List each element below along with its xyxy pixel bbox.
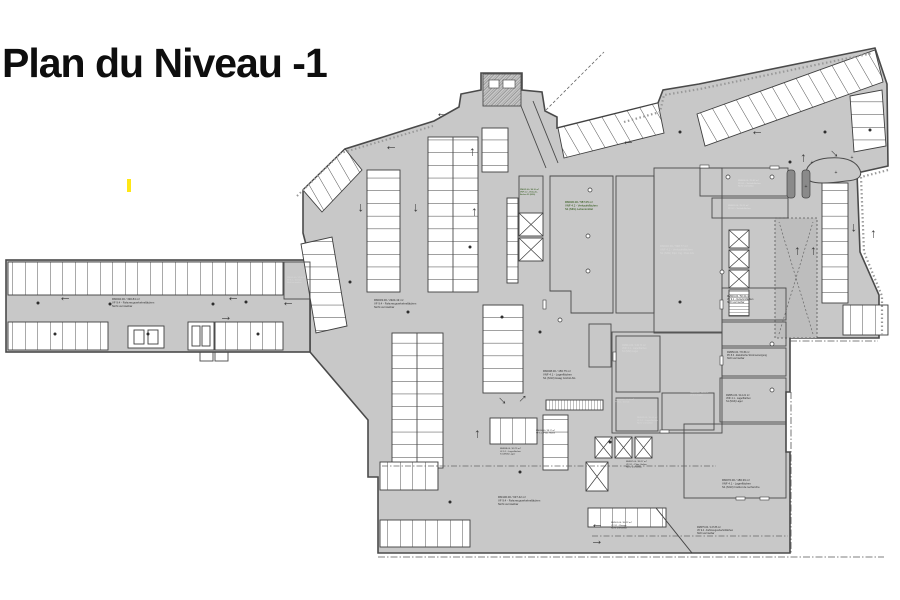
door-marks-part — [613, 352, 616, 361]
room-label: Nicht vermietbar — [727, 301, 745, 304]
column-marker — [245, 301, 248, 304]
room-label: Nicht vermietbar — [626, 466, 642, 469]
direction-arrow: → — [59, 294, 72, 309]
column-marker — [212, 303, 215, 306]
floorplan-svg: ++++ →→→→→→→→→→→→→→→→→→→→→→→ RM002.00 / … — [0, 0, 900, 600]
column-marker — [469, 246, 472, 249]
column-marker-ring — [726, 175, 730, 179]
room-label: Nicht vermietbar — [727, 357, 745, 360]
room-label: flächen S1 (MIG) — [520, 194, 535, 196]
utility-box — [200, 352, 213, 361]
column-marker — [609, 441, 612, 444]
stall-column — [482, 128, 508, 172]
room-label: PF 8.2 - Technikflächen — [728, 208, 752, 210]
room-label: Nicht vermietbar — [498, 502, 518, 506]
room-label: VF 9.1 - Platz, Halten — [626, 463, 648, 466]
stall-column — [507, 198, 518, 283]
room-label: RM101.00 / 56.22 m² — [611, 521, 632, 524]
elevator-left-wing-part — [202, 326, 210, 346]
stall-column — [367, 170, 400, 292]
speed-bump — [787, 170, 795, 198]
elevator-left-wing-part — [128, 326, 164, 348]
room-label: LF 5.1 - Lager — [690, 395, 703, 397]
column-marker — [824, 131, 827, 134]
column-marker — [37, 302, 40, 305]
elevator-left-wing-part — [134, 330, 144, 344]
column-marker — [147, 333, 150, 336]
column-marker — [869, 129, 872, 132]
door-marks-part — [543, 300, 546, 309]
door-marks-part — [700, 165, 709, 168]
column-marker-ring — [586, 234, 590, 238]
room-label: S1 (M13) Institut de recherche — [722, 485, 760, 489]
direction-arrow: → — [468, 428, 483, 441]
room-label: RM098.00 / 43.75 m² — [500, 447, 521, 450]
room-label: PF 8.1 - Technikflächen — [738, 183, 762, 185]
stall-row — [380, 520, 470, 547]
room-label: Nicht vermietbar — [611, 527, 627, 530]
column-marker — [449, 501, 452, 504]
page: Plan du Niveau -1 — [0, 0, 900, 600]
column-marker-ring — [588, 188, 592, 192]
stall-row — [8, 262, 283, 295]
room-label: Nicht vermietbar — [637, 422, 653, 425]
direction-arrow: → — [465, 206, 480, 219]
room-label: LF 5.1 - Lagerflächen — [500, 450, 522, 453]
door-marks-part — [736, 497, 745, 500]
room-label: RM097.00 / 38.17 m² — [626, 460, 647, 463]
stair-run — [546, 400, 603, 410]
direction-arrow: → — [463, 146, 478, 159]
direction-arrow: → — [804, 245, 819, 258]
room-label: Nicht vermietbar — [738, 185, 754, 188]
column-marker — [257, 333, 260, 336]
property-line-dashed — [546, 52, 604, 110]
room-label: VF 9.1 - Rampe — [611, 525, 627, 527]
room-label: S1 (M13) Lager — [500, 453, 515, 456]
storage-rooms — [483, 305, 523, 393]
direction-arrow: → — [220, 309, 233, 324]
column-marker — [679, 131, 682, 134]
room-label: S1 (MSI) Lager — [622, 350, 638, 353]
column-marker-ring — [720, 270, 724, 274]
stall-row — [8, 322, 108, 350]
direction-arrow: → — [794, 152, 809, 165]
direction-arrow: → — [591, 533, 604, 548]
column-marker — [501, 316, 504, 319]
direction-arrow: → — [227, 294, 240, 309]
stall-column — [822, 183, 848, 303]
column-marker-ring — [770, 388, 774, 392]
column-marker — [679, 301, 682, 304]
room-label: S1 (MSI) Dipl. Ing. Post AG — [660, 251, 694, 255]
room-label: Nicht vermietbar — [374, 305, 394, 309]
room-label: S1 (M13) Lager — [726, 400, 743, 403]
door-marks-part — [660, 430, 669, 433]
direction-arrow: → — [411, 202, 426, 215]
room-label: RM042.00 / 56.05 m² — [637, 416, 658, 419]
yellow-mark — [127, 179, 131, 192]
elevator-left-wing-part — [148, 330, 158, 344]
survey-plus-mark: + — [811, 160, 814, 166]
stall-column — [392, 333, 443, 468]
direction-arrow: → — [436, 110, 449, 125]
room-label: VF 9.1 - Platz, Halten — [536, 432, 555, 435]
column-marker — [519, 471, 522, 474]
column-marker-ring — [770, 175, 774, 179]
room-label: Nicht vermietbar — [287, 281, 302, 284]
door-marks-part — [760, 497, 769, 500]
stall-row — [215, 322, 283, 350]
survey-plus-mark: + — [835, 170, 838, 176]
direction-arrow: → — [282, 299, 295, 314]
room-label: RM060.00 / 25.82 m² — [738, 179, 759, 182]
column-marker — [407, 311, 410, 314]
column-marker — [789, 161, 792, 164]
utility-box — [215, 352, 228, 361]
direction-arrow: → — [849, 222, 864, 235]
direction-arrow: → — [356, 202, 371, 215]
room-label: S1 (M13) Haag GmbH AG — [543, 376, 576, 380]
column-marker-ring — [586, 269, 590, 273]
room-label: RM061.00 / 24.11 m² — [728, 204, 749, 207]
column-marker-ring — [558, 318, 562, 322]
elevator-left-wing-part — [192, 326, 200, 346]
direction-arrow: → — [864, 228, 879, 241]
door-marks-part — [720, 356, 723, 365]
stall-column — [543, 415, 568, 470]
column-marker-ring — [770, 342, 774, 346]
direction-arrow: → — [751, 128, 764, 143]
survey-plus-mark: + — [851, 155, 854, 161]
direction-arrow: → — [622, 138, 635, 153]
stall-row — [490, 418, 537, 444]
room-label: PF 8.2 - Technik — [615, 402, 629, 404]
entrance-structure-part — [489, 80, 499, 88]
entrance-box-hatch — [483, 74, 521, 106]
entrance-structure-part — [503, 80, 515, 88]
direction-arrow: → — [788, 245, 803, 258]
survey-plus-mark: + — [805, 184, 808, 190]
door-marks-part — [770, 166, 779, 169]
column-marker — [349, 281, 352, 284]
room-label: Nicht vermietbar — [697, 532, 715, 535]
room-label: LF 5.1 - Lagerflächen — [637, 419, 659, 422]
door-marks-part — [720, 300, 723, 309]
room-label: Nicht vermietbar — [112, 304, 132, 308]
direction-arrow: → — [385, 143, 398, 158]
column-marker — [54, 333, 57, 336]
column-marker — [539, 331, 542, 334]
stall-band-diagonal — [850, 90, 886, 152]
room-label: S1 (MIG) Lebensmittel — [565, 207, 593, 211]
